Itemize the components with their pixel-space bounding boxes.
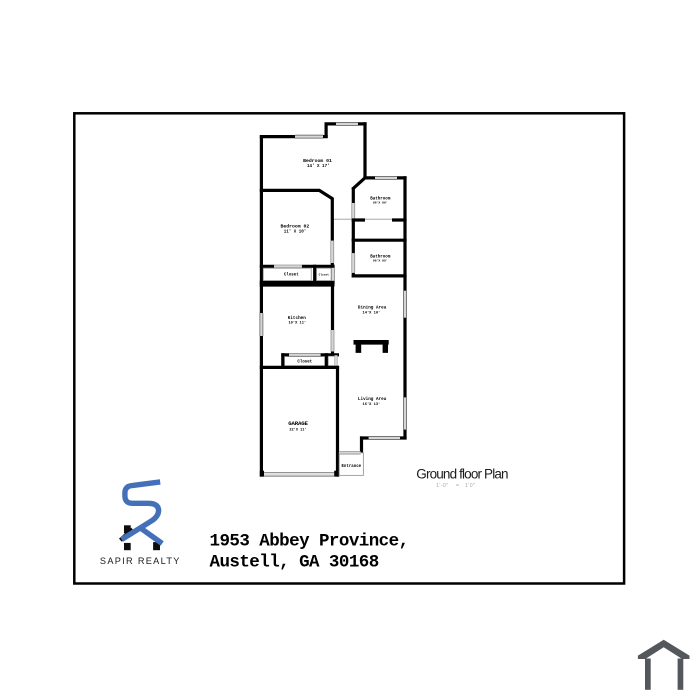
- svg-text:22'X 11': 22'X 11': [289, 428, 306, 433]
- svg-text:Closet: Closet: [284, 273, 299, 278]
- svg-text:Bedroom 02: Bedroom 02: [281, 224, 310, 230]
- svg-text:Austell, GA 30168: Austell, GA 30168: [210, 553, 379, 573]
- svg-text:11' X 10': 11' X 10': [284, 229, 307, 234]
- svg-text:06'X 06': 06'X 06': [373, 200, 388, 204]
- svg-text:Entrance: Entrance: [341, 465, 361, 469]
- svg-text:Dining Area: Dining Area: [358, 306, 387, 311]
- svg-text:Ground floor Plan: Ground floor Plan: [416, 466, 508, 481]
- svg-text:SAPIR REALTY: SAPIR REALTY: [100, 556, 181, 566]
- svg-text:1'-0" = 1'0": 1'-0" = 1'0": [436, 483, 475, 489]
- svg-text:Bedroom 01: Bedroom 01: [303, 158, 332, 164]
- svg-text:Closet: Closet: [319, 272, 330, 276]
- svg-text:Kitchen: Kitchen: [288, 316, 306, 321]
- svg-text:GARAGE: GARAGE: [288, 420, 308, 427]
- svg-text:1953 Abbey Province,: 1953 Abbey Province,: [210, 532, 409, 552]
- svg-text:Closet: Closet: [297, 359, 312, 364]
- svg-text:14' X 17': 14' X 17': [307, 164, 330, 169]
- svg-text:10'X 11': 10'X 11': [288, 321, 306, 326]
- svg-text:Living Area: Living Area: [358, 397, 387, 402]
- svg-text:16'X 13': 16'X 13': [363, 402, 381, 407]
- svg-text:06'X 05': 06'X 05': [373, 259, 388, 263]
- svg-text:14'X 10': 14'X 10': [363, 310, 381, 315]
